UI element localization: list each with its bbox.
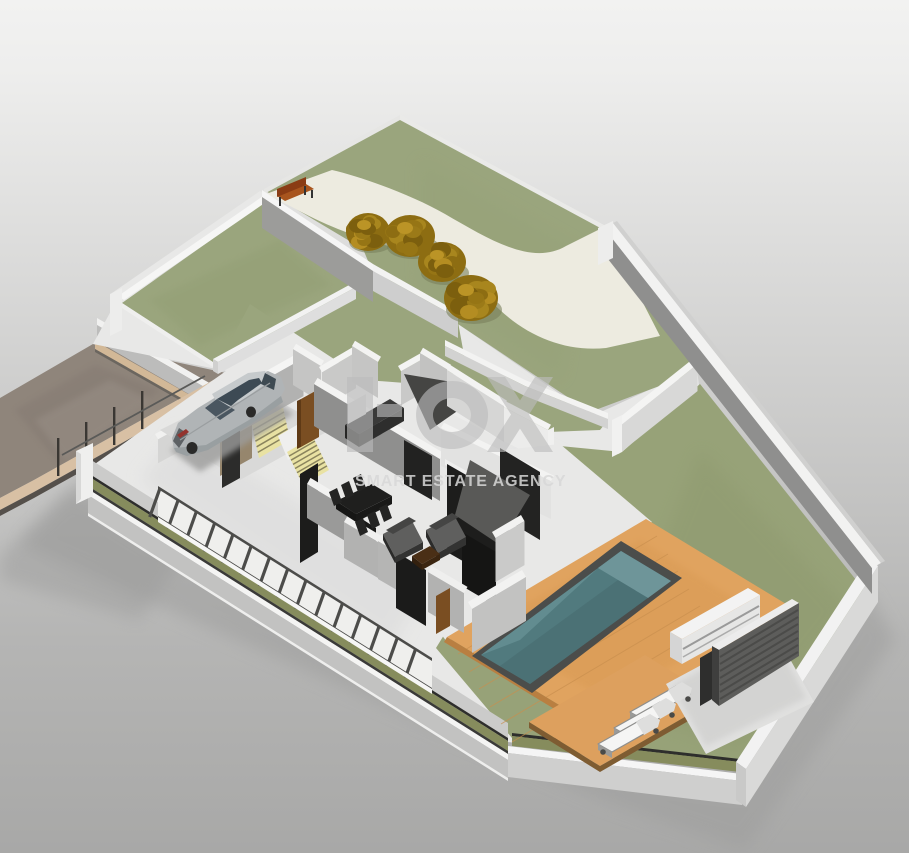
svg-text:SMART ESTATE AGENCY: SMART ESTATE AGENCY [355,473,566,490]
